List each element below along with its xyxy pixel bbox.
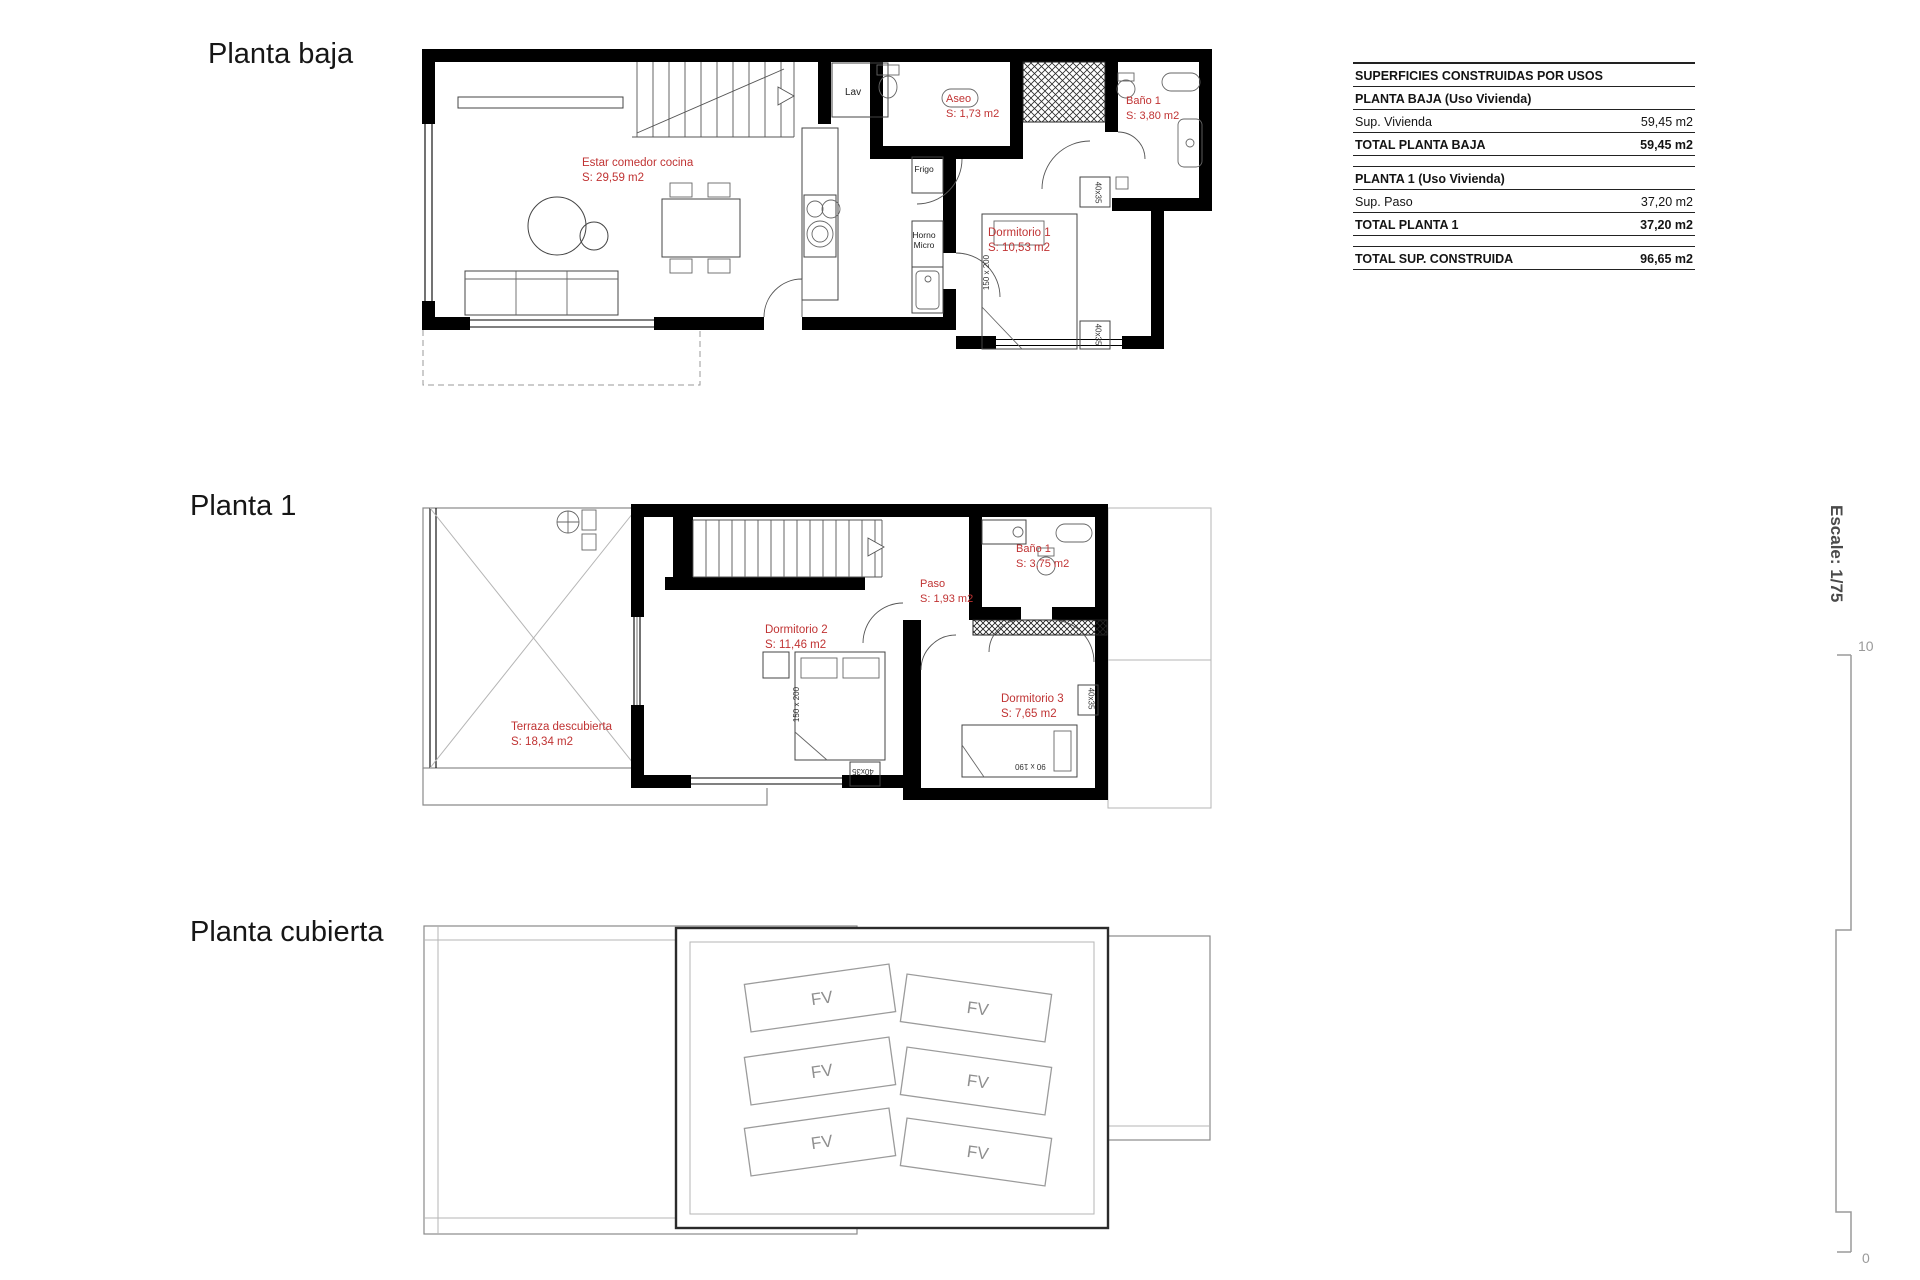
section-planta-baja: PLANTA BAJA (Uso Vivienda) — [1353, 87, 1695, 110]
staircase — [632, 62, 794, 137]
solar-panel-label: FV — [966, 1071, 991, 1093]
dim-bed-90x190: 90 x 190 — [1015, 762, 1046, 771]
room-label-paso: Paso S: 1,93 m2 — [920, 577, 973, 606]
wardrobe — [973, 620, 1107, 635]
table-gap — [1353, 236, 1695, 246]
solar-panel-label: FV — [810, 1131, 835, 1153]
row-sup-paso: Sup. Paso 37,20 m2 — [1353, 190, 1695, 213]
room-label-dormitorio1: Dormitorio 1 S: 10,53 m2 — [988, 226, 1051, 256]
row-total-construida: TOTAL SUP. CONSTRUIDA 96,65 m2 — [1353, 246, 1695, 270]
label-lav: Lav — [845, 87, 861, 99]
dim-nightstand: 40x35 — [1093, 182, 1102, 204]
room-label-bano1-p1: Baño 1 S: 3,75 m2 — [1016, 542, 1069, 571]
wardrobe — [1023, 62, 1105, 122]
title-planta-1: Planta 1 — [190, 490, 296, 523]
side-roof-outline — [1108, 508, 1211, 808]
terrace-lower-outline — [423, 768, 767, 805]
porch-dashed-outline — [423, 330, 700, 385]
room-label-dormitorio3: Dormitorio 3 S: 7,65 m2 — [1001, 692, 1064, 722]
room-label-terraza: Terraza descubierta S: 18,34 m2 — [511, 720, 612, 750]
bed-dormitorio-1 — [982, 177, 1110, 349]
planta-1-plan — [422, 500, 1212, 830]
dining-table — [662, 183, 740, 273]
side-roof — [1108, 936, 1210, 1140]
dim-bed-150x200: 150 x 200 — [792, 687, 801, 722]
sofa — [465, 271, 618, 315]
dim-nightstand: 40x35 — [1093, 324, 1102, 346]
kitchen-counter — [802, 128, 840, 300]
staircase — [693, 520, 884, 577]
washing-machine — [982, 520, 1026, 544]
row-sup-vivienda: Sup. Vivienda 59,45 m2 — [1353, 110, 1695, 133]
scale-ruler — [1815, 630, 1885, 1280]
title-planta-baja: Planta baja — [208, 38, 353, 71]
room-label-bano1-pb: Baño 1 S: 3,80 m2 — [1126, 94, 1179, 123]
areas-table-header: SUPERFICIES CONSTRUIDAS POR USOS — [1353, 64, 1695, 87]
areas-table: SUPERFICIES CONSTRUIDAS POR USOS PLANTA … — [1353, 62, 1695, 270]
section-planta-1: PLANTA 1 (Uso Vivienda) — [1353, 166, 1695, 190]
room-label-aseo: Aseo S: 1,73 m2 — [946, 92, 999, 121]
drawing-sheet: Planta baja Planta 1 Planta cubierta — [0, 0, 1920, 1280]
dim-bed-150x200: 150 x 200 — [982, 255, 991, 290]
solar-panel-label: FV — [966, 998, 991, 1020]
label-horno: Horno Micro — [908, 231, 940, 251]
planta-cubierta-plan: FV FV FV FV FV FV — [422, 920, 1212, 1240]
bath-fixtures — [1116, 73, 1202, 189]
tv-unit — [458, 97, 623, 108]
room-label-estar: Estar comedor cocina S: 29,59 m2 — [582, 156, 693, 186]
label-frigo: Frigo — [908, 165, 940, 175]
row-total-planta-baja: TOTAL PLANTA BAJA 59,45 m2 — [1353, 133, 1695, 156]
dim-nightstand: 40x35 — [1086, 688, 1095, 710]
room-label-dormitorio2: Dormitorio 2 S: 11,46 m2 — [765, 623, 828, 653]
solar-panel-label: FV — [966, 1142, 991, 1164]
areas-table-header-text: SUPERFICIES CONSTRUIDAS POR USOS — [1355, 69, 1603, 83]
dim-nightstand: 40x35 — [852, 767, 874, 776]
armchair-round — [528, 197, 608, 255]
solar-panel-label: FV — [810, 1060, 835, 1082]
title-planta-cubierta: Planta cubierta — [190, 916, 383, 949]
table-gap — [1353, 156, 1695, 166]
row-total-planta-1: TOTAL PLANTA 1 37,20 m2 — [1353, 213, 1695, 236]
scale-label: Escale: 1/75 — [1826, 505, 1846, 602]
solar-panel-label: FV — [810, 987, 835, 1009]
bed-dormitorio-2 — [763, 652, 885, 786]
